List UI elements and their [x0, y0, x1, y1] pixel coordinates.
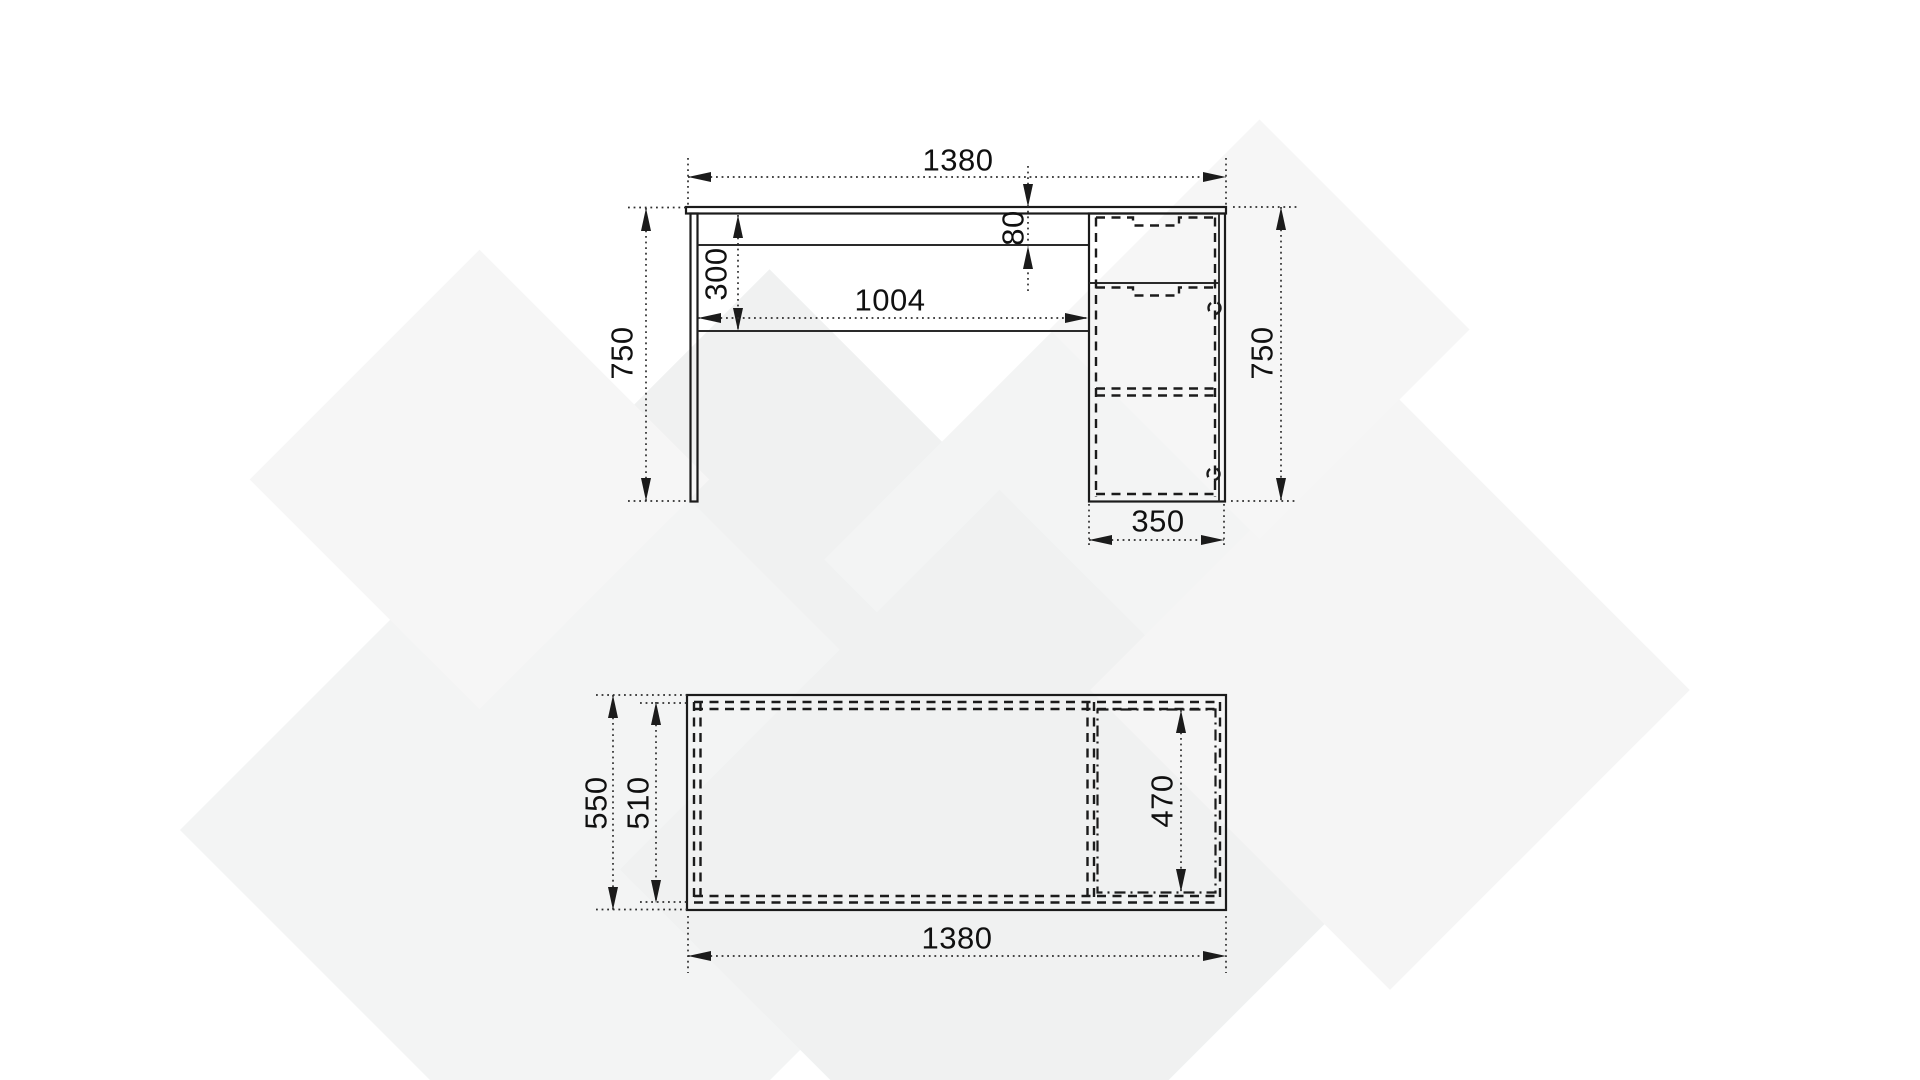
dim-label-height-left: 750 — [605, 326, 640, 379]
arrowhead-up — [1023, 246, 1033, 269]
hidden-drawer-bottom — [1096, 288, 1215, 296]
plan-view-dimensions: 550 510 470 1380 — [579, 695, 1227, 973]
dim-label-depth-outer: 550 — [579, 776, 614, 829]
arrowhead-left — [1089, 535, 1112, 545]
drawing-sheet: 1380 750 300 1004 — [0, 0, 1920, 1080]
arrowhead-down — [651, 880, 661, 903]
hidden-fitting-lower — [1208, 468, 1220, 480]
arrowhead-up — [608, 695, 618, 718]
arrowhead-right — [1201, 535, 1224, 545]
dim-label-height-right: 750 — [1245, 326, 1280, 379]
dim-label-apron: 80 — [996, 210, 1031, 245]
arrowhead-down — [641, 478, 651, 501]
arrowhead-right — [1203, 951, 1226, 961]
dimension-drawing-canvas: 1380 750 300 1004 — [0, 0, 1920, 1080]
arrowhead-down — [1176, 869, 1186, 892]
arrowhead-up — [641, 208, 651, 231]
pedestal-outline — [1089, 214, 1225, 502]
desk-solid-outline — [686, 207, 1226, 502]
hidden-drawer-top — [1096, 218, 1215, 226]
dim-label-width-top: 1380 — [923, 143, 994, 178]
dim-label-knee-width: 1004 — [855, 283, 926, 318]
dim-label-shelf-drop: 300 — [699, 247, 734, 300]
dim-label-width-bottom: 1380 — [922, 921, 993, 956]
plan-view: 550 510 470 1380 — [579, 695, 1227, 973]
arrowhead-up — [651, 702, 661, 725]
arrowhead-down — [1276, 478, 1286, 501]
desk-left-leg — [691, 214, 698, 502]
pedestal-hidden-lines — [1096, 218, 1221, 498]
arrowhead-down — [608, 887, 618, 910]
dim-label-pedestal-width: 350 — [1131, 504, 1184, 539]
arrowhead-right — [1203, 172, 1226, 182]
dim-label-pedestal-depth: 470 — [1145, 774, 1180, 827]
arrowhead-left — [698, 313, 721, 323]
arrowhead-up — [1176, 710, 1186, 733]
arrowhead-down — [733, 308, 743, 331]
arrowhead-right — [1065, 313, 1088, 323]
arrowhead-up — [733, 215, 743, 238]
arrowhead-up — [1276, 207, 1286, 230]
front-elevation-view: 1380 750 300 1004 — [605, 143, 1301, 548]
front-view-dimensions: 1380 750 300 1004 — [605, 143, 1301, 548]
arrowhead-left — [688, 172, 711, 182]
arrowhead-left — [688, 951, 711, 961]
arrowhead-down — [1023, 184, 1033, 207]
dim-label-depth-inner: 510 — [621, 776, 656, 829]
plan-hidden-lines — [694, 702, 1221, 903]
